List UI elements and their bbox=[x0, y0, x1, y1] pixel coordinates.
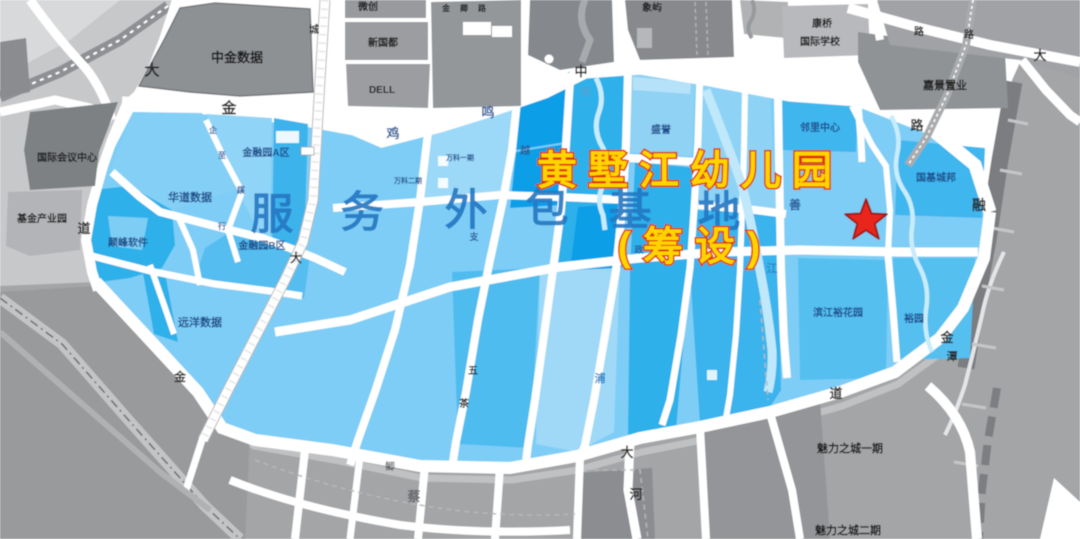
svg-text:务: 务 bbox=[341, 189, 384, 237]
svg-text:蹊: 蹊 bbox=[237, 185, 246, 195]
svg-text:五: 五 bbox=[468, 365, 478, 377]
svg-text:大: 大 bbox=[290, 250, 302, 265]
svg-text:外: 外 bbox=[445, 187, 488, 235]
svg-text:国基城邦: 国基城邦 bbox=[916, 171, 956, 184]
svg-text:邻里中心: 邻里中心 bbox=[800, 121, 840, 134]
svg-text:裕园: 裕园 bbox=[903, 312, 924, 325]
svg-text:金: 金 bbox=[939, 330, 954, 345]
svg-text:万科二期: 万科二期 bbox=[393, 176, 422, 185]
svg-text:(筹设): (筹设) bbox=[618, 225, 773, 269]
svg-text:康桥: 康桥 bbox=[812, 17, 833, 30]
svg-text:颠峰软件: 颠峰软件 bbox=[108, 236, 148, 249]
svg-text:塘: 塘 bbox=[580, 84, 591, 98]
svg-text:企: 企 bbox=[208, 125, 218, 135]
svg-text:金融园B区: 金融园B区 bbox=[237, 239, 285, 252]
svg-text:象屿: 象屿 bbox=[642, 1, 662, 14]
svg-text:大: 大 bbox=[1033, 48, 1046, 63]
svg-text:蔡: 蔡 bbox=[406, 489, 420, 504]
svg-text:盛誉: 盛誉 bbox=[651, 123, 672, 136]
svg-text:路: 路 bbox=[910, 118, 924, 133]
svg-text:国际学校: 国际学校 bbox=[800, 35, 841, 48]
svg-text:服: 服 bbox=[251, 191, 294, 239]
svg-text:大: 大 bbox=[620, 445, 633, 460]
svg-text:滨江裕花园: 滨江裕花园 bbox=[813, 306, 863, 319]
svg-text:远洋数据: 远洋数据 bbox=[178, 315, 222, 329]
svg-text:城: 城 bbox=[309, 23, 319, 36]
svg-text:河: 河 bbox=[629, 487, 642, 502]
svg-text:潭: 潭 bbox=[947, 349, 958, 363]
svg-text:华道数据: 华道数据 bbox=[168, 190, 212, 204]
svg-text:大: 大 bbox=[144, 61, 159, 79]
svg-text:万科一期: 万科一期 bbox=[445, 153, 474, 162]
svg-text:鸣: 鸣 bbox=[481, 105, 494, 120]
svg-text:浦: 浦 bbox=[595, 371, 606, 385]
svg-text:越: 越 bbox=[519, 144, 531, 157]
svg-text:中金数据: 中金数据 bbox=[211, 50, 263, 65]
svg-text:路: 路 bbox=[964, 28, 975, 41]
svg-text:道: 道 bbox=[77, 221, 90, 236]
svg-text:金融园A区: 金融园A区 bbox=[241, 146, 289, 159]
svg-text:融: 融 bbox=[972, 197, 986, 213]
svg-text:路: 路 bbox=[914, 25, 925, 38]
svg-text:金: 金 bbox=[220, 99, 237, 117]
svg-text:新国都: 新国都 bbox=[368, 36, 398, 49]
svg-text:魅力之城一期: 魅力之城一期 bbox=[817, 441, 883, 455]
svg-text:卿: 卿 bbox=[460, 3, 468, 13]
svg-text:金: 金 bbox=[441, 3, 451, 13]
svg-text:鲫: 鲫 bbox=[385, 460, 395, 473]
svg-text:金: 金 bbox=[173, 369, 187, 384]
svg-text:鸡: 鸡 bbox=[385, 126, 399, 141]
svg-text:茶: 茶 bbox=[458, 397, 470, 410]
svg-text:嘉景置业: 嘉景置业 bbox=[922, 78, 967, 92]
svg-text:基金产业园: 基金产业园 bbox=[16, 212, 67, 225]
svg-text:行: 行 bbox=[217, 221, 226, 231]
svg-text:善: 善 bbox=[789, 197, 801, 212]
svg-text:中: 中 bbox=[574, 64, 587, 79]
svg-text:路: 路 bbox=[478, 3, 487, 13]
svg-text:国际会议中心: 国际会议中心 bbox=[37, 151, 97, 164]
svg-text:至: 至 bbox=[218, 151, 226, 160]
svg-text:魅力之城二期: 魅力之城二期 bbox=[815, 523, 881, 537]
svg-text:微创: 微创 bbox=[357, 0, 378, 13]
svg-text:黄墅江幼儿园: 黄墅江幼儿园 bbox=[537, 149, 843, 193]
svg-text:道: 道 bbox=[829, 386, 842, 401]
svg-text:DELL: DELL bbox=[369, 85, 395, 96]
